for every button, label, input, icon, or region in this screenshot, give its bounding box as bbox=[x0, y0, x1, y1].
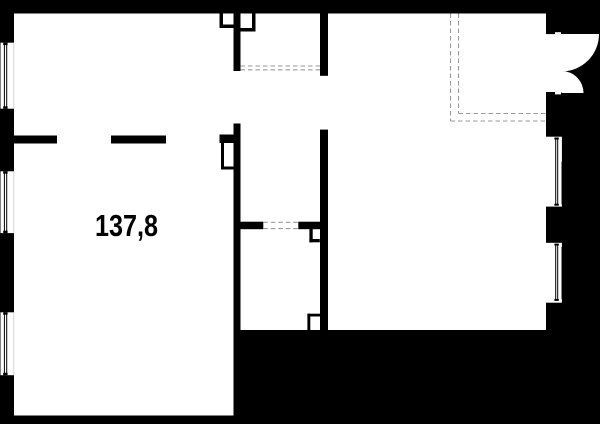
svg-text:137,8: 137,8 bbox=[95, 209, 158, 243]
